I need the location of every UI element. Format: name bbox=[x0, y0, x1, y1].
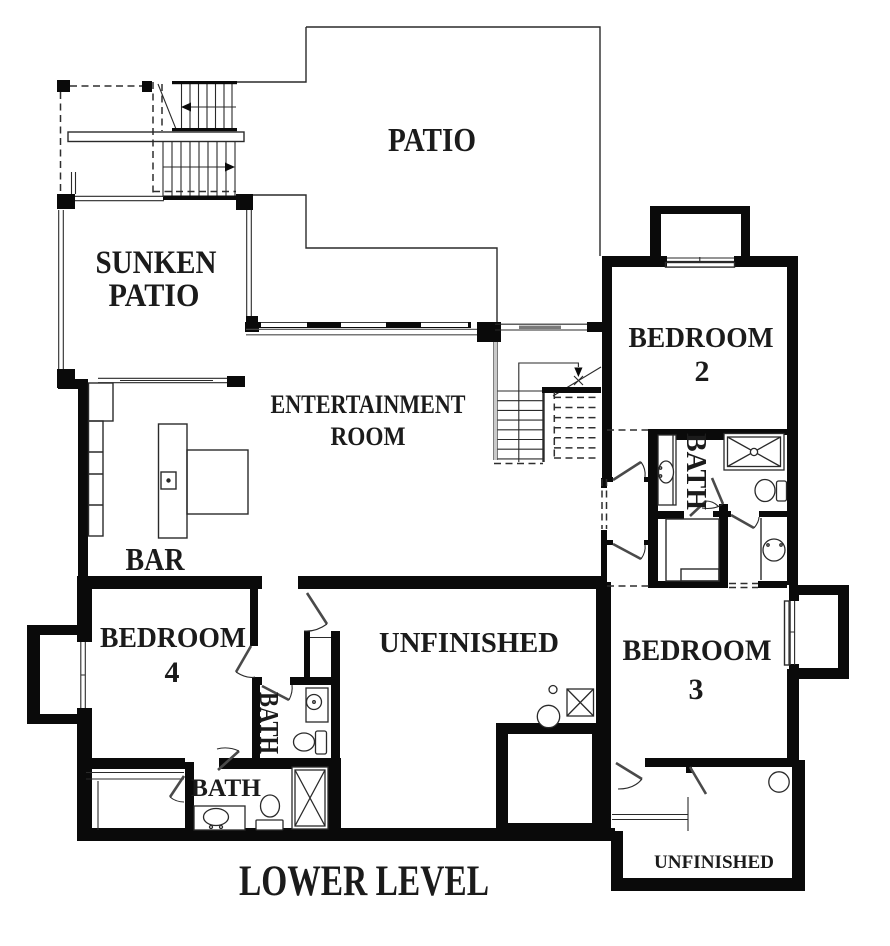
svg-text:BEDROOM: BEDROOM bbox=[629, 322, 774, 354]
svg-text:BEDROOM: BEDROOM bbox=[100, 622, 246, 654]
svg-text:PATIO: PATIO bbox=[388, 122, 476, 159]
svg-text:LOWER LEVEL: LOWER LEVEL bbox=[239, 858, 489, 905]
svg-text:4: 4 bbox=[165, 656, 180, 689]
svg-text:UNFINISHED: UNFINISHED bbox=[654, 852, 774, 873]
svg-text:BEDROOM: BEDROOM bbox=[623, 634, 772, 667]
svg-text:BATH: BATH bbox=[680, 433, 712, 510]
svg-text:BATH: BATH bbox=[191, 775, 262, 802]
svg-text:UNFINISHED: UNFINISHED bbox=[379, 628, 559, 659]
svg-text:3: 3 bbox=[689, 673, 704, 706]
svg-text:PATIO: PATIO bbox=[109, 278, 200, 314]
svg-text:SUNKEN: SUNKEN bbox=[96, 245, 217, 281]
svg-text:ENTERTAINMENT: ENTERTAINMENT bbox=[271, 390, 466, 419]
svg-text:2: 2 bbox=[695, 355, 710, 388]
svg-text:BAR: BAR bbox=[126, 541, 186, 577]
svg-text:BATH: BATH bbox=[254, 692, 284, 754]
svg-text:ROOM: ROOM bbox=[331, 422, 406, 451]
